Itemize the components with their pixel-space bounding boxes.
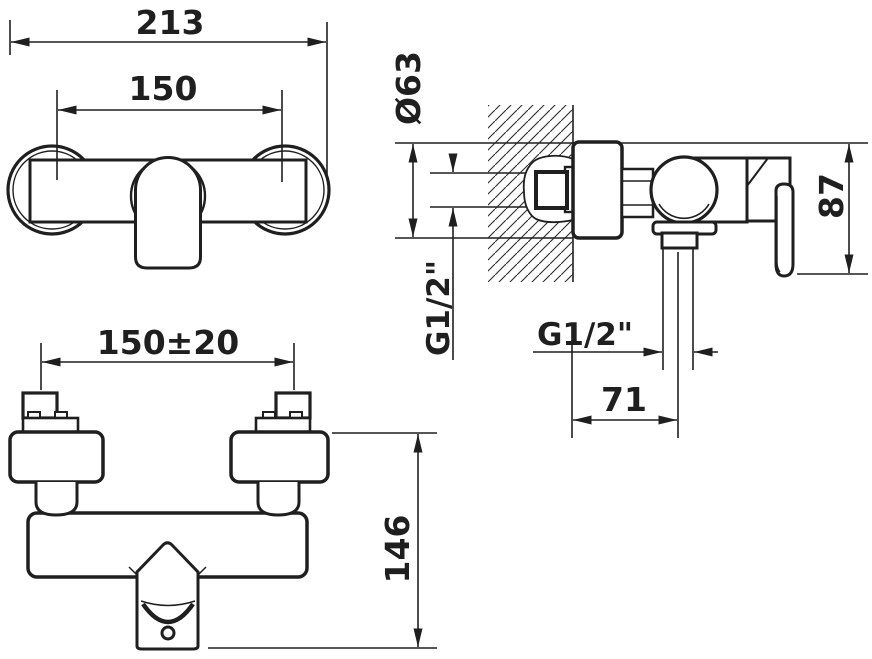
bottom-neck-left: [36, 482, 77, 515]
valve-body: [651, 157, 717, 223]
dim-label-g12-outlet: G1/2": [537, 317, 633, 353]
dim-outlet-thread: G1/2": [533, 317, 718, 353]
dim-label-150-20: 150±20: [97, 323, 239, 362]
dim-label-87: 87: [812, 173, 851, 219]
bottom-neck-right: [258, 482, 299, 515]
bottom-union-flange-left: [23, 418, 78, 432]
dim-label-146: 146: [378, 515, 417, 584]
dim-outlet-projection: 71: [573, 380, 677, 420]
side-view: Ø63 G1/2" 87 G1/2" 71: [389, 51, 868, 438]
s-union-thread: [536, 172, 567, 208]
front-lever-handle: [136, 158, 201, 269]
dim-label-150: 150: [129, 69, 198, 108]
front-view: 213 150: [8, 3, 329, 268]
outlet-nut: [662, 233, 697, 248]
dim-centers-tolerance: 150±20: [41, 323, 294, 390]
handle-blade: [776, 184, 793, 276]
dim-label-dia63: Ø63: [389, 51, 428, 125]
dim-label-71: 71: [601, 380, 647, 419]
handle-screw-hole: [162, 627, 174, 639]
bottom-escutcheon-left: [10, 432, 103, 482]
dim-wall-thread: G1/2": [421, 155, 457, 360]
dim-label-213: 213: [136, 3, 205, 42]
dim-escutcheon-diameter: Ø63: [389, 51, 428, 237]
dim-label-g12-wall: G1/2": [421, 260, 457, 356]
dim-height-87: 87: [797, 144, 868, 274]
bottom-view: 150±20 146: [10, 323, 437, 649]
bottom-escutcheon-right: [231, 432, 328, 482]
side-escutcheon: [573, 142, 622, 238]
connector-nut: [622, 169, 653, 217]
drawing-canvas: 213 150: [0, 0, 872, 659]
technical-drawing: 213 150: [0, 0, 872, 659]
bottom-union-flange-right: [256, 418, 310, 432]
